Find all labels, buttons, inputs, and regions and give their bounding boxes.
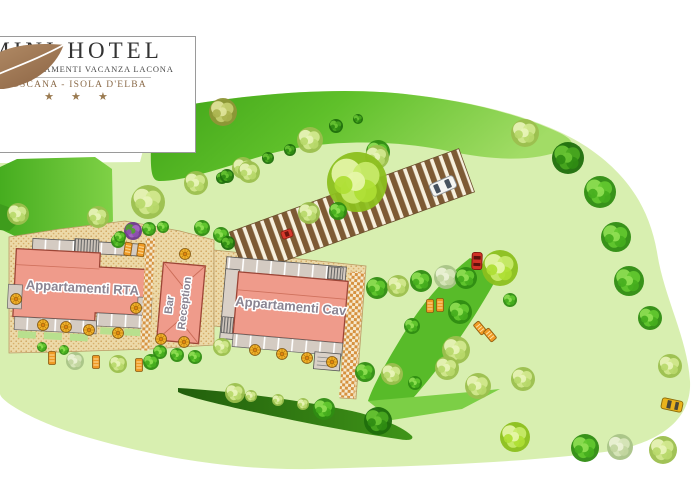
- tree: [297, 127, 323, 153]
- leaf-icon: [0, 37, 77, 89]
- building-rta: Appartamenti RTA: [5, 231, 155, 350]
- tree: [313, 398, 335, 420]
- tree: [387, 275, 409, 297]
- tree: [184, 171, 208, 195]
- parasol-icon: [156, 334, 167, 345]
- sun-lounger: [93, 356, 100, 369]
- sun-lounger: [49, 352, 56, 365]
- parasol-icon: [131, 303, 142, 314]
- tree: [220, 169, 234, 183]
- building-bar-reception: Bar Reception: [157, 262, 206, 343]
- parasol-icon: [61, 322, 72, 333]
- tree: [188, 350, 202, 364]
- tree: [109, 355, 127, 373]
- tree: [366, 277, 388, 299]
- tree: [170, 348, 184, 362]
- tree: [353, 114, 363, 124]
- tree: [194, 220, 210, 236]
- tree: [157, 221, 169, 233]
- tree: [238, 161, 260, 183]
- tree: [658, 354, 682, 378]
- tree: [298, 202, 320, 224]
- sun-lounger: [136, 359, 143, 372]
- tree: [482, 250, 518, 286]
- parasol-icon: [302, 353, 313, 364]
- tree: [355, 362, 375, 382]
- tree: [221, 236, 235, 250]
- stairs-cav-top: [327, 267, 343, 280]
- tree: [511, 119, 539, 147]
- tree: [66, 352, 84, 370]
- parasol-icon: [84, 325, 95, 336]
- sun-lounger: [437, 299, 444, 312]
- tree: [381, 363, 403, 385]
- tree: [503, 293, 517, 307]
- resort-site-map: Appartamenti RTA Bar Reception Appartame…: [0, 0, 700, 500]
- tree: [297, 398, 309, 410]
- tree: [209, 98, 237, 126]
- tree: [329, 202, 347, 220]
- tree: [448, 300, 472, 324]
- tree: [142, 222, 156, 236]
- tree: [37, 342, 47, 352]
- tree: [131, 185, 165, 219]
- tree: [607, 434, 633, 460]
- parasol-icon: [11, 294, 22, 305]
- tree: [614, 266, 644, 296]
- tree: [434, 265, 458, 289]
- tree: [225, 383, 245, 403]
- tree: [435, 356, 459, 380]
- parasol-icon: [38, 320, 49, 331]
- tree: [584, 176, 616, 208]
- tree: [638, 306, 662, 330]
- parasol-icon: [113, 328, 124, 339]
- tree: [114, 231, 126, 243]
- tree: [284, 144, 296, 156]
- tree: [213, 338, 231, 356]
- tree: [87, 206, 109, 228]
- tree: [408, 376, 422, 390]
- label-bar: Bar: [163, 294, 177, 314]
- parasol-icon: [277, 349, 288, 360]
- tree: [500, 422, 530, 452]
- tree: [404, 318, 420, 334]
- tree: [552, 142, 584, 174]
- star-rating: ★ ★ ★: [0, 91, 195, 103]
- tree: [143, 354, 159, 370]
- tree: [571, 434, 599, 462]
- tree: [364, 407, 392, 435]
- tree: [465, 373, 491, 399]
- parasol-icon: [179, 337, 190, 348]
- sun-lounger: [427, 300, 434, 313]
- tree: [245, 390, 257, 402]
- tree: [511, 367, 535, 391]
- tree: [410, 270, 432, 292]
- sun-lounger: [137, 243, 146, 257]
- car-red: [472, 252, 483, 269]
- tree: [124, 222, 142, 240]
- tree: [7, 203, 29, 225]
- tree: [262, 152, 274, 164]
- parasol-icon: [250, 345, 261, 356]
- parasol-icon: [180, 249, 191, 260]
- sun-lounger: [124, 242, 133, 256]
- stairs-rta: [74, 239, 99, 253]
- tree: [649, 436, 677, 464]
- tree: [272, 394, 284, 406]
- tree: [601, 222, 631, 252]
- hotel-logo-card: MINI HOTEL RTA & APPARTAMENTI VACANZA LA…: [0, 36, 196, 153]
- tree: [329, 119, 343, 133]
- tree: [59, 345, 69, 355]
- tree: [455, 267, 477, 289]
- parasol-icon: [327, 357, 338, 368]
- stairs-cav-left: [221, 317, 233, 334]
